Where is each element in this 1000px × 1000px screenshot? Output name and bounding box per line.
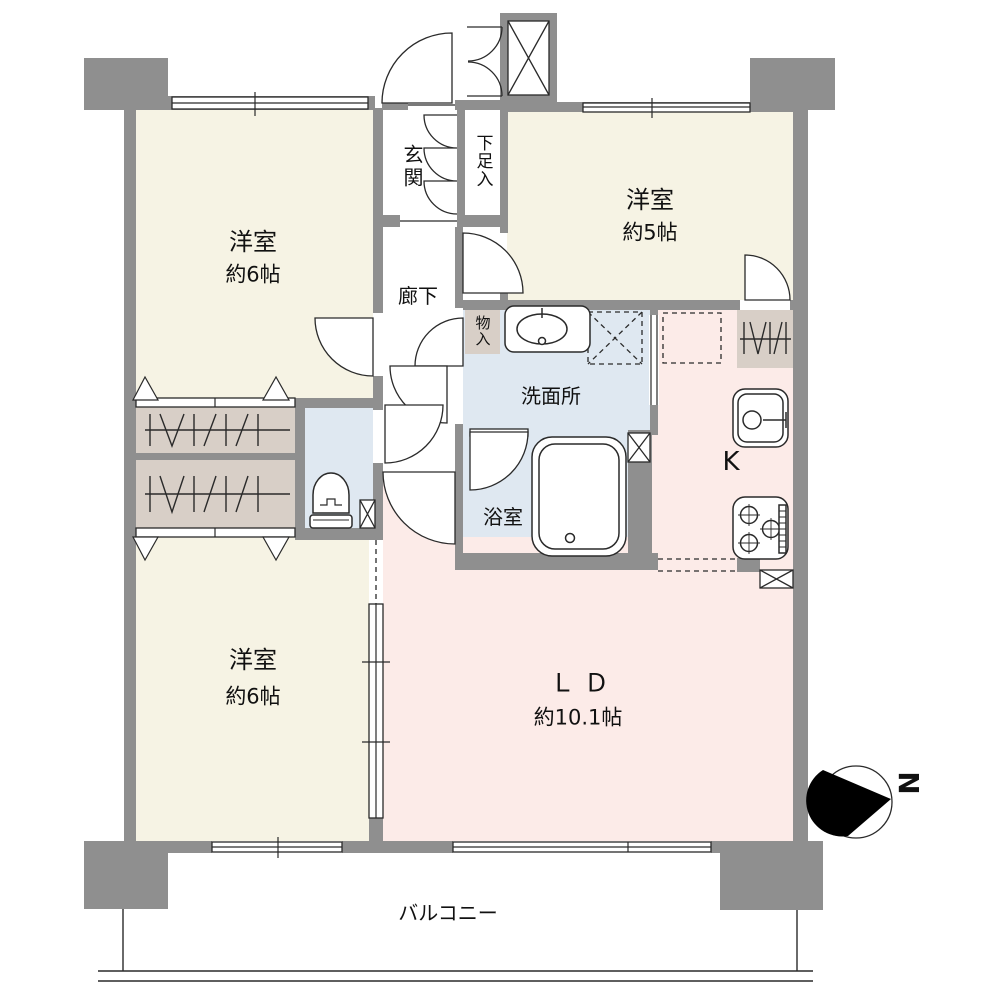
- compass-icon: [806, 766, 892, 838]
- toilet-bowl: [313, 473, 349, 513]
- washroom-label: 洗面所: [521, 386, 581, 406]
- living-dining-size: 約10.1帖: [534, 708, 623, 729]
- living-dining-label: ＬＤ: [550, 671, 618, 696]
- vanity-drain: [539, 338, 546, 345]
- kitchen-sink-drain: [743, 411, 761, 429]
- floorplan-canvas: 洋室 約6帖 洋室 約5帖 洋室 約6帖 ＬＤ 約10.1帖 K 玄関 下足入 …: [0, 0, 1000, 1000]
- bathtub-inner: [539, 444, 619, 549]
- floorplan-drawing: [0, 0, 1000, 1000]
- toilet-door: [385, 405, 443, 463]
- bedroom1-doorway: [373, 313, 383, 376]
- shoe-cabinet-doors: [424, 115, 457, 214]
- balcony-label: バルコニー: [398, 903, 498, 923]
- hallway-label: 廊下: [398, 286, 438, 306]
- storage-label: 物入: [475, 315, 490, 347]
- kitchen-closet-opening: [740, 300, 790, 310]
- bath-column: [628, 433, 650, 462]
- bathtub-drain: [566, 534, 575, 543]
- toilet-column: [360, 500, 375, 528]
- ld-column: [760, 570, 793, 588]
- shoe-cabinet-label: 下足入: [474, 134, 491, 188]
- bedroom-bottom-left-label: 洋室: [229, 648, 277, 672]
- meterbox-doors: [467, 27, 502, 96]
- bedroom-bottom-left-size: 約6帖: [225, 687, 280, 708]
- compass-north-label: N: [894, 771, 922, 794]
- bedroom-top-left-label: 洋室: [229, 230, 277, 254]
- bedroom-top-right-label: 洋室: [626, 188, 674, 212]
- kitchen-label: K: [722, 449, 739, 475]
- entrance-door: [382, 33, 452, 103]
- bedroom-top-right-size: 約5帖: [622, 223, 677, 244]
- storage-door: [415, 318, 463, 366]
- bedroom-top-left-size: 約6帖: [225, 265, 280, 286]
- toilet-tank: [310, 515, 352, 528]
- bathroom-label: 浴室: [483, 507, 523, 527]
- entrance-label: 玄関: [402, 144, 422, 190]
